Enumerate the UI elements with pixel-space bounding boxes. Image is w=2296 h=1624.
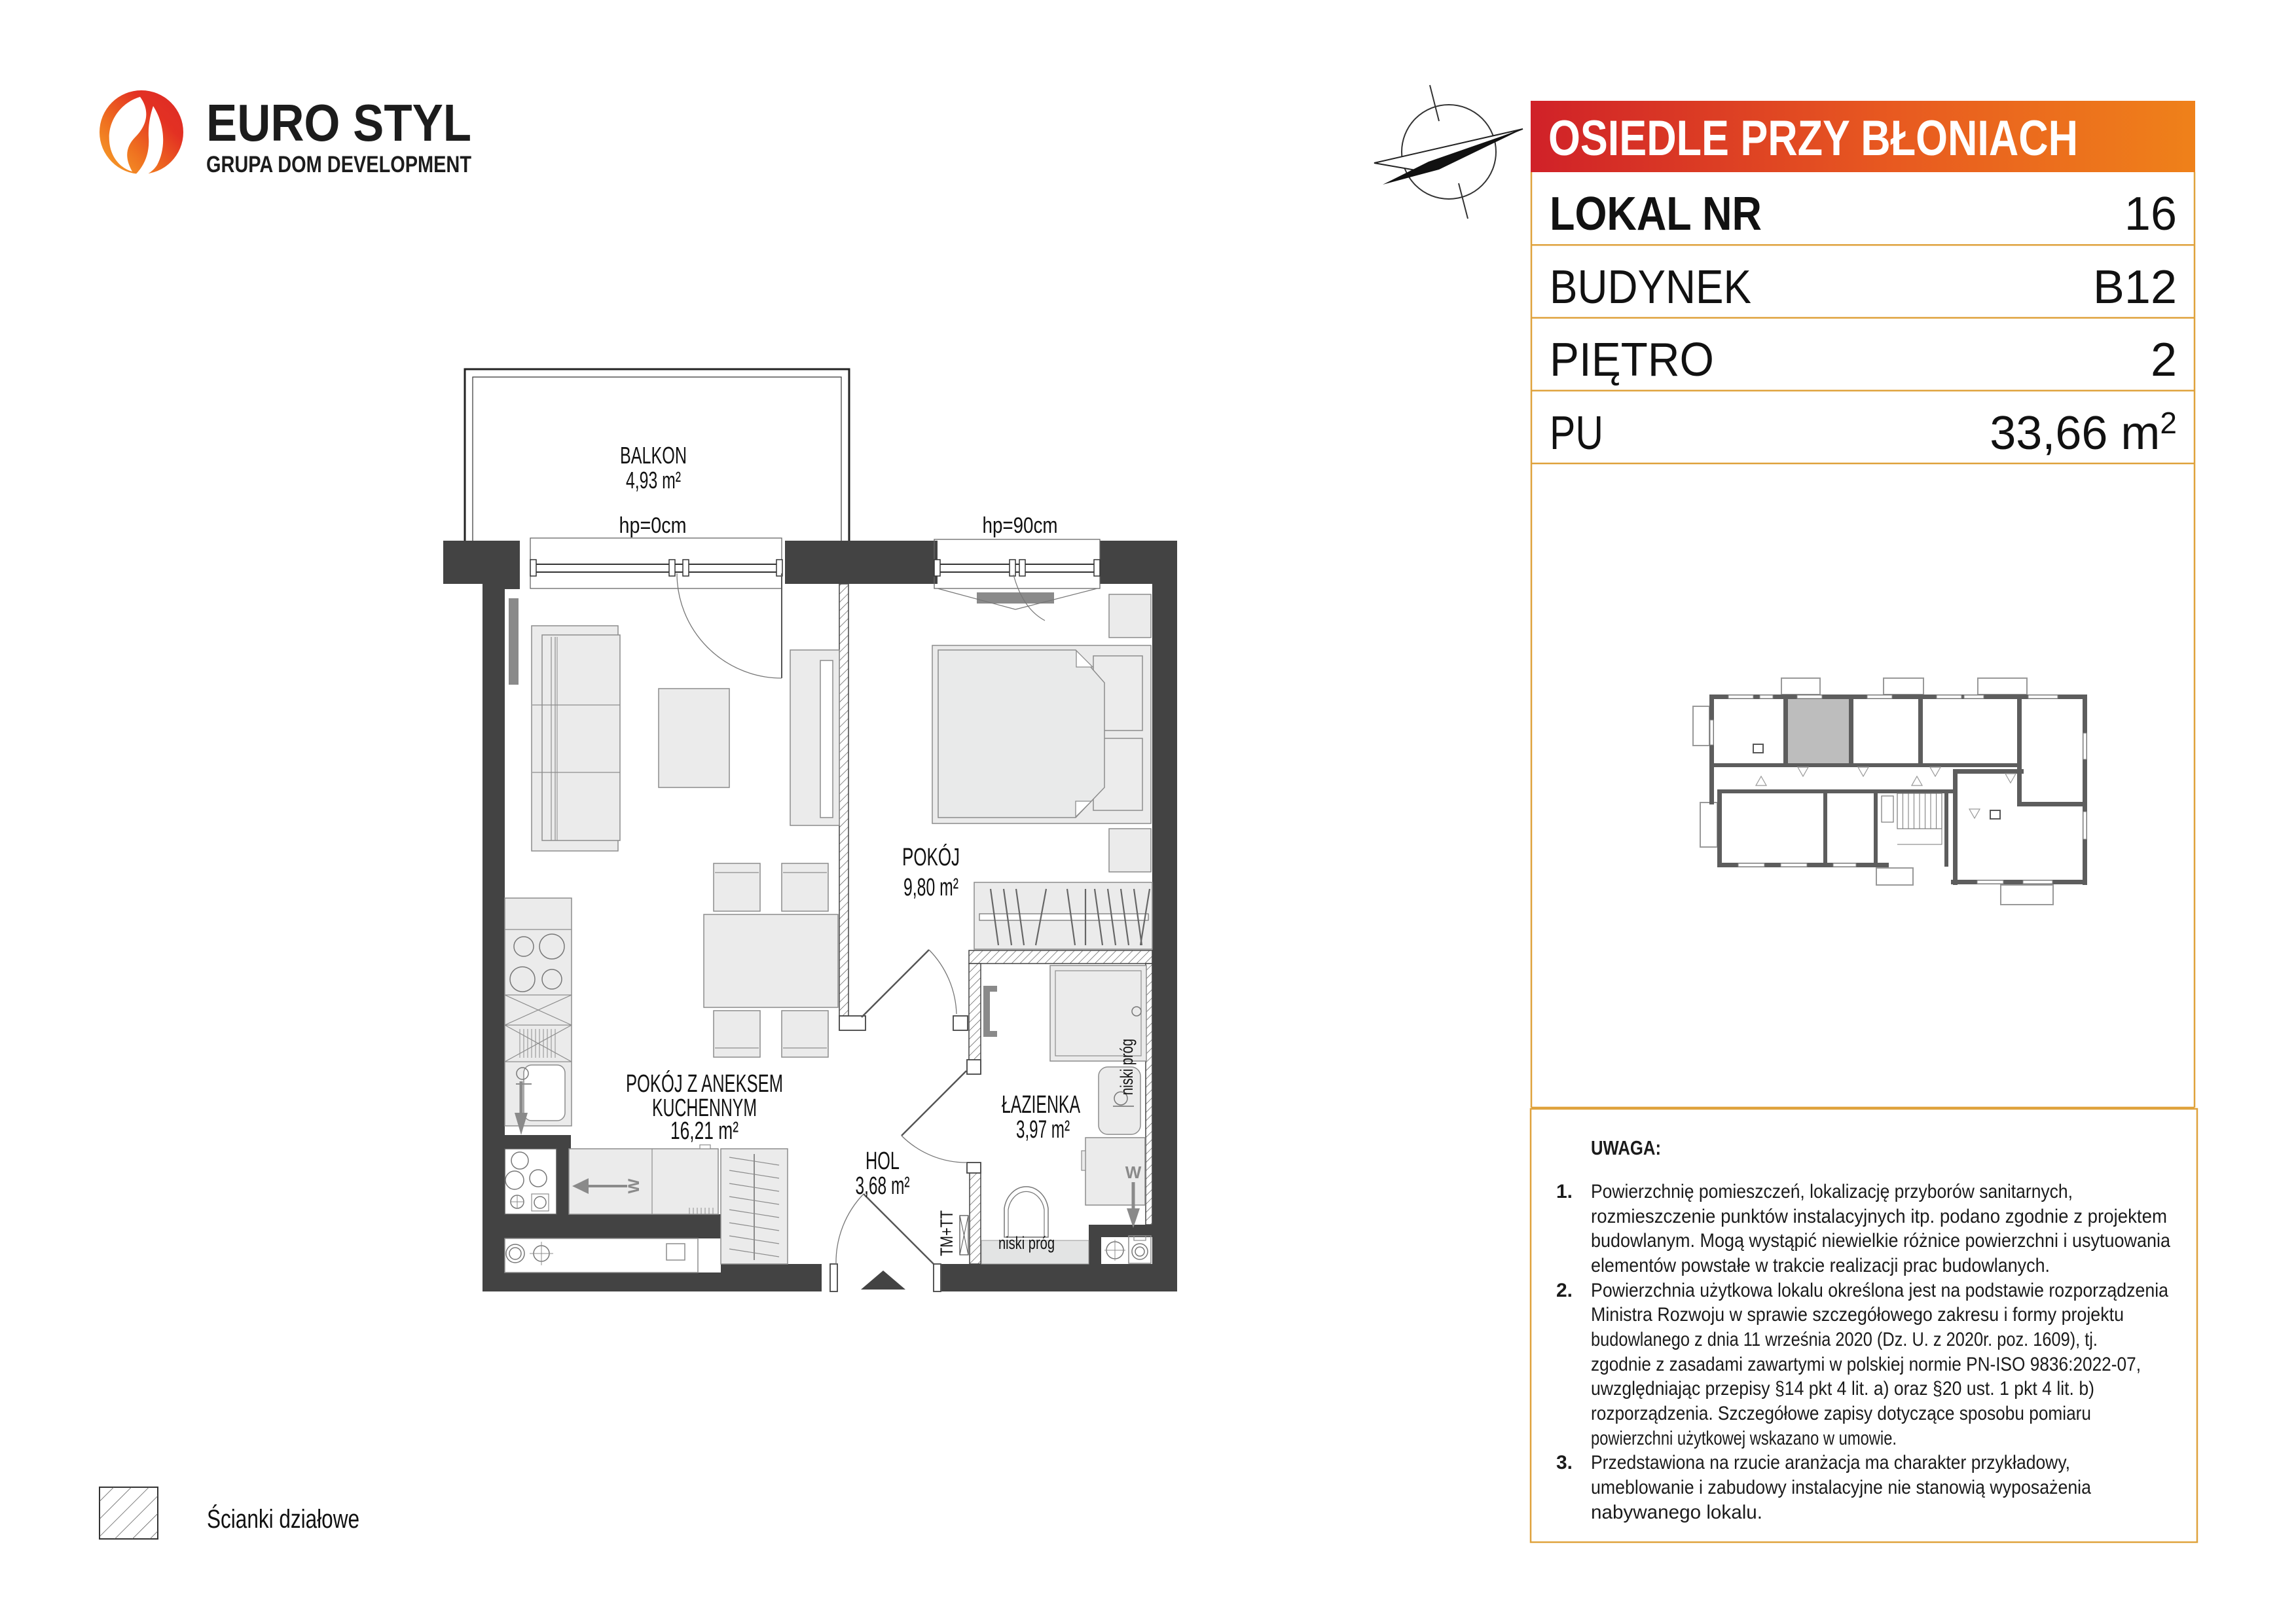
svg-text:GRUPA DOM DEVELOPMENT: GRUPA DOM DEVELOPMENT	[206, 152, 471, 177]
svg-text:Ścianki działowe: Ścianki działowe	[207, 1504, 359, 1534]
svg-text:PU: PU	[1550, 407, 1603, 460]
svg-text:BALKON: BALKON	[620, 442, 687, 469]
svg-text:elementów powstałe w trakcie r: elementów powstałe w trakcie realizacji …	[1591, 1255, 2050, 1276]
svg-text:W: W	[1125, 1163, 1142, 1182]
svg-text:uwzględniając przepisy §14 pkt: uwzględniając przepisy §14 pkt 4 lit. a)…	[1591, 1378, 2094, 1399]
svg-text:PIĘTRO: PIĘTRO	[1550, 334, 1714, 386]
svg-text:HOL: HOL	[866, 1147, 900, 1175]
svg-text:Powierzchnię pomieszczeń, loka: Powierzchnię pomieszczeń, lokalizację pr…	[1591, 1181, 2073, 1202]
svg-text:TM+TT: TM+TT	[937, 1210, 957, 1256]
svg-text:nabywanego lokalu.: nabywanego lokalu.	[1591, 1502, 1762, 1523]
svg-text:POKÓJ: POKÓJ	[902, 843, 960, 871]
svg-text:hp=90cm: hp=90cm	[983, 513, 1058, 538]
svg-text:zgodnie z zasadami zawartymi w: zgodnie z zasadami zawartymi w polskiej …	[1591, 1354, 2141, 1375]
svg-text:3,68 m²: 3,68 m²	[856, 1172, 910, 1200]
svg-text:rozporządzenia. Szczegółowe za: rozporządzenia. Szczegółowe zapisy dotyc…	[1591, 1403, 2091, 1424]
svg-text:4,93 m²: 4,93 m²	[626, 467, 681, 494]
svg-text:LOKAL NR: LOKAL NR	[1550, 188, 1762, 240]
svg-text:Powierzchnia użytkowa lokalu o: Powierzchnia użytkowa lokalu określona j…	[1591, 1280, 2168, 1301]
svg-text:niski próg: niski próg	[1117, 1039, 1137, 1095]
svg-text:1.: 1.	[1556, 1181, 1573, 1202]
svg-text:umeblowanie i zabudowy instala: umeblowanie i zabudowy instalacyjne nie …	[1591, 1477, 2091, 1498]
svg-text:EURO STYL: EURO STYL	[206, 94, 471, 152]
svg-text:Ministra Rozwoju w sprawie szc: Ministra Rozwoju w sprawie szczegółowego…	[1591, 1304, 2124, 1326]
svg-text:ŁAZIENKA: ŁAZIENKA	[1002, 1091, 1080, 1119]
svg-text:rozmieszczenie punktów instala: rozmieszczenie punktów instalacyjnych it…	[1591, 1206, 2167, 1227]
svg-text:3.: 3.	[1556, 1452, 1573, 1473]
svg-text:BUDYNEK: BUDYNEK	[1550, 261, 1751, 314]
svg-text:powierzchni użytkowej wskazano: powierzchni użytkowej wskazano w umowie.	[1591, 1428, 1897, 1449]
svg-text:B12: B12	[2093, 261, 2177, 314]
svg-text:budowlanym. Mogą wystąpić niew: budowlanym. Mogą wystąpić niewielkie róż…	[1591, 1230, 2170, 1252]
svg-text:3,97 m²: 3,97 m²	[1016, 1116, 1070, 1144]
svg-text:2: 2	[2151, 334, 2177, 386]
svg-text:9,80 m²: 9,80 m²	[903, 874, 958, 901]
svg-text:niski próg: niski próg	[998, 1233, 1055, 1253]
svg-text:UWAGA:: UWAGA:	[1591, 1136, 1661, 1159]
svg-text:2.: 2.	[1556, 1280, 1573, 1301]
svg-text:W: W	[625, 1178, 643, 1193]
svg-text:16,21 m²: 16,21 m²	[670, 1117, 738, 1145]
svg-text:Przedstawiona na rzucie aranża: Przedstawiona na rzucie aranżacja ma cha…	[1591, 1452, 2070, 1473]
svg-text:OSIEDLE PRZY BŁONIACH: OSIEDLE PRZY BŁONIACH	[1548, 111, 2078, 166]
svg-text:budowlanego z dnia 11 września: budowlanego z dnia 11 września 2020 (Dz.…	[1591, 1329, 2098, 1350]
svg-text:16: 16	[2124, 188, 2177, 240]
svg-text:POKÓJ Z ANEKSEM: POKÓJ Z ANEKSEM	[626, 1070, 783, 1098]
svg-text:hp=0cm: hp=0cm	[619, 513, 687, 538]
svg-text:33,66 m2: 33,66 m2	[1990, 406, 2177, 460]
